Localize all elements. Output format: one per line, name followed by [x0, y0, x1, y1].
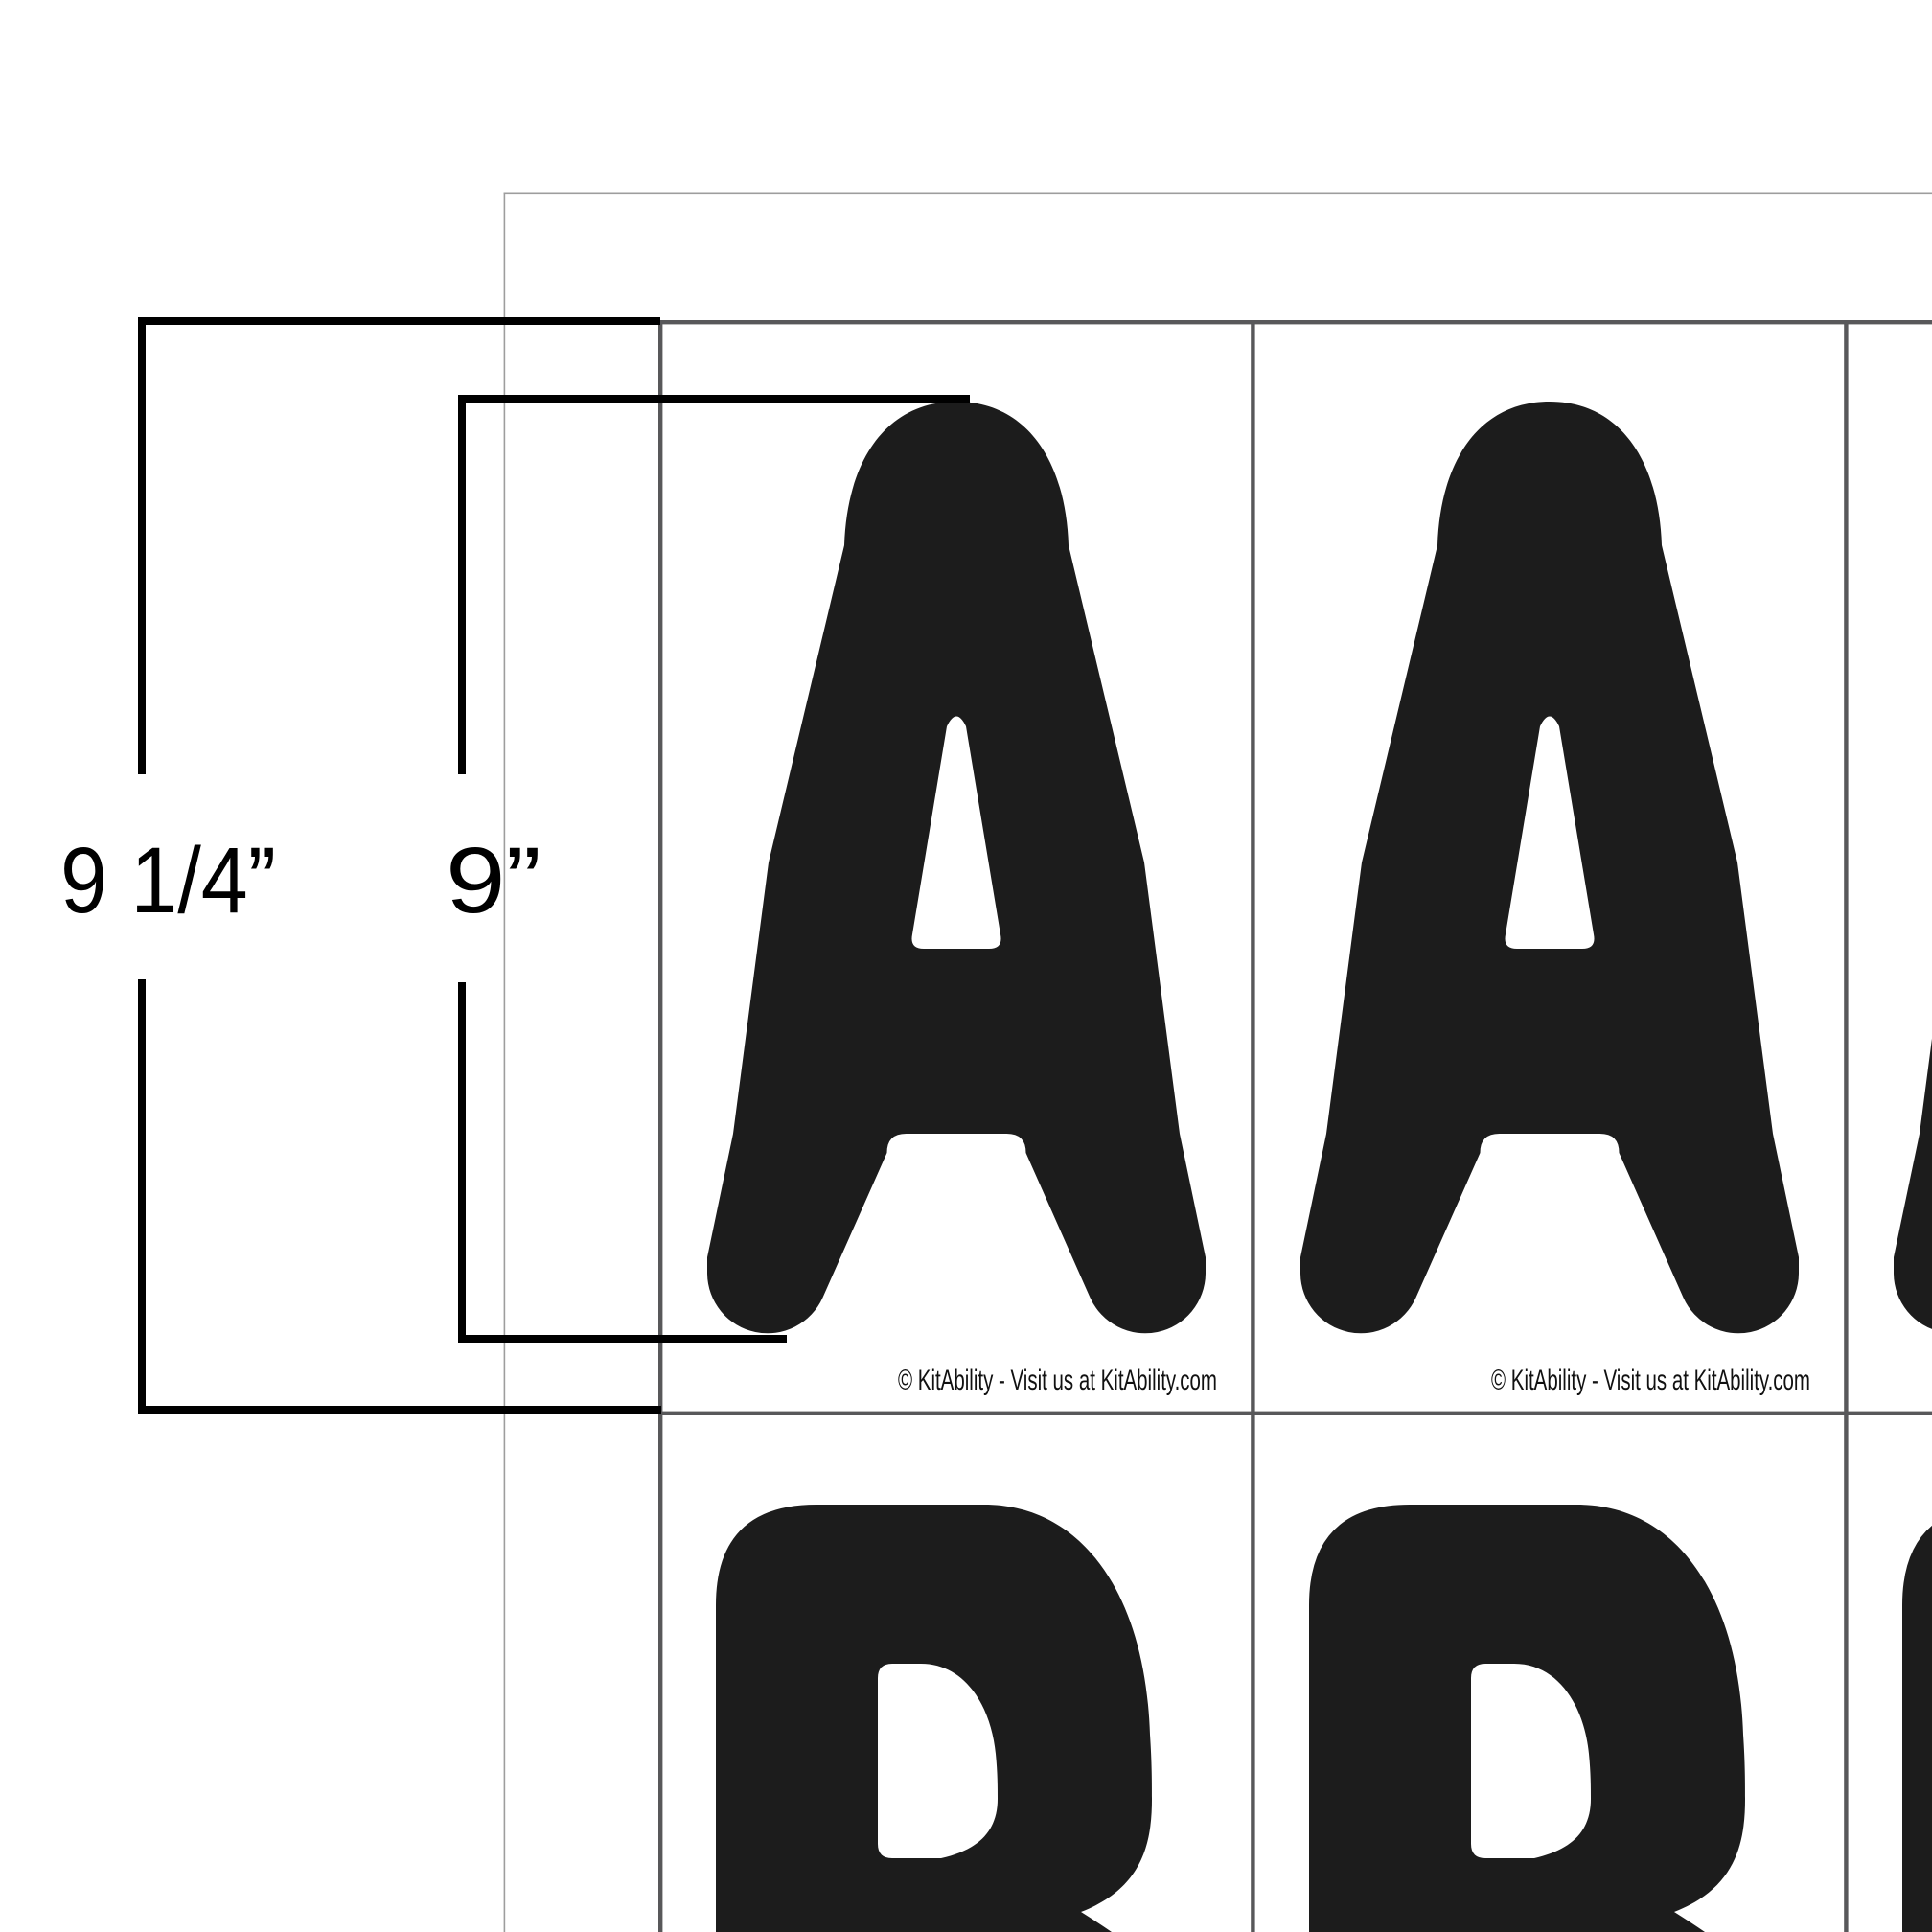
- svg-text:9 1/4”: 9 1/4”: [60, 828, 276, 932]
- svg-text:© KitAbility - Visit us at Kit: © KitAbility - Visit us at KitAbility.co…: [898, 1365, 1217, 1396]
- svg-text:© KitAbility - Visit us at Kit: © KitAbility - Visit us at KitAbility.co…: [1491, 1365, 1810, 1396]
- svg-text:9”: 9”: [446, 828, 541, 932]
